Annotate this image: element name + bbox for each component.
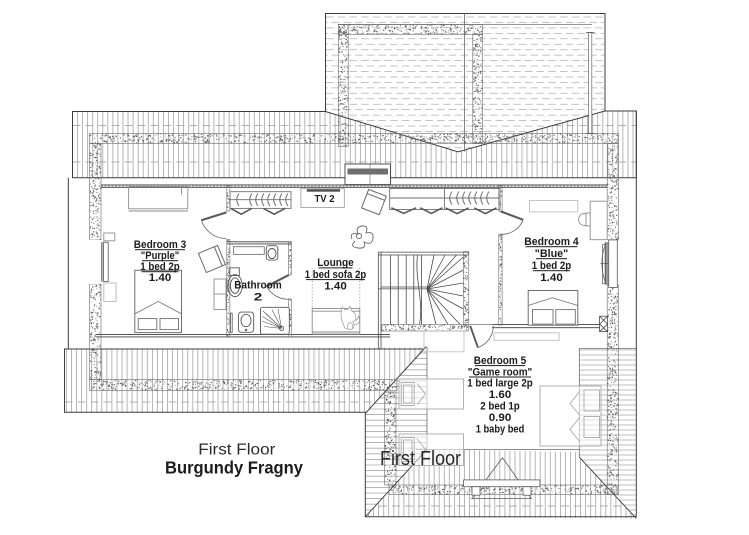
svg-text:1 bed large 2p: 1 bed large 2p: [467, 378, 533, 390]
svg-text:1 baby bed: 1 baby bed: [476, 423, 525, 435]
svg-text:First Floor: First Floor: [198, 442, 275, 459]
svg-text:1.40: 1.40: [149, 272, 172, 284]
svg-text:TV 2: TV 2: [315, 193, 335, 205]
svg-text:Bathroom: Bathroom: [234, 280, 282, 292]
svg-text:First Floor: First Floor: [380, 448, 461, 470]
svg-text:1.40: 1.40: [324, 281, 347, 293]
svg-text:0.90: 0.90: [489, 412, 512, 424]
svg-text:1.60: 1.60: [489, 389, 512, 401]
svg-text:2: 2: [254, 292, 263, 304]
svg-text:1.40: 1.40: [540, 272, 563, 284]
svg-text:2 bed 1p: 2 bed 1p: [480, 401, 520, 413]
svg-text:Burgundy Fragny: Burgundy Fragny: [165, 457, 303, 477]
